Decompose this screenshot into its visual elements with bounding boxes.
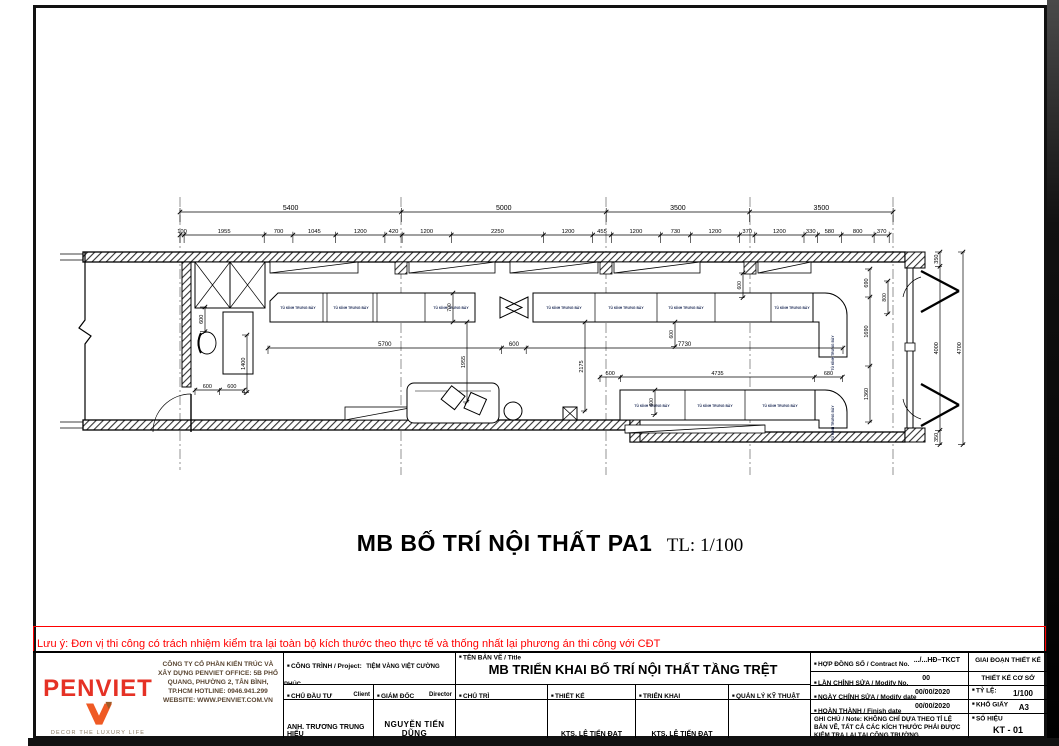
- dim-label: 1200: [629, 229, 642, 235]
- cabinet-label: TỦ KÍNH TRƯNG BÀY: [830, 335, 835, 371]
- modify-no-value: 00: [922, 675, 930, 682]
- dim-label: 4700: [957, 342, 963, 354]
- dim-label: 5000: [496, 205, 512, 212]
- page-edge-shadow-right: [1047, 0, 1059, 746]
- trienkhai-value: KTS. LÊ TIẾN ĐẠT: [636, 731, 728, 738]
- trienkhai-label: TRIỂN KHAI: [636, 692, 680, 700]
- drawing-sheet: TỦ KÍNH TRƯNG BÀY TỦ KÍNH TRƯNG BÀY TỦ K…: [0, 0, 1059, 746]
- dim-label: 690: [864, 278, 870, 287]
- dim-label: 7730: [678, 342, 692, 348]
- dim-label: 1200: [709, 229, 722, 235]
- finish-date-label: HOÀN THÀNH / Finish date: [811, 707, 901, 714]
- dim-label: 330: [806, 229, 816, 235]
- wall-break-line: [79, 252, 91, 420]
- stage-value: THIẾT KẾ CƠ SỞ: [969, 672, 1047, 682]
- client-value: ANH. TRƯƠNG TRUNG HIẾU: [287, 724, 373, 738]
- plan-title-text: MB BỐ TRÍ NỘI THẤT PA1: [357, 530, 653, 556]
- cabinet-label: TỦ KÍNH TRƯNG BÀY: [333, 305, 369, 310]
- sheet-no-cell: SỐ HIỆU KT - 01: [968, 714, 1047, 741]
- paper-label: KHỔ GIẤY: [969, 700, 1008, 709]
- cabinet-label: TỦ KÍNH TRƯNG BÀY: [774, 305, 810, 310]
- vestibule-wall: [182, 262, 191, 387]
- storefront-pier-bottom: [905, 428, 925, 442]
- logo-v-icon: [86, 701, 112, 727]
- wall-pier: [600, 262, 612, 274]
- company-info: CÔNG TY CỔ PHẦN KIẾN TRÚC VÀ XÂY DỰNG PE…: [155, 655, 283, 705]
- entrance-door-bottom: [903, 384, 959, 426]
- dim-label: 1200: [354, 229, 367, 235]
- director-sublabel: Director: [429, 692, 452, 698]
- thietke-label: THIẾT KẾ: [548, 692, 585, 700]
- wall-cabinets-top: [270, 262, 811, 273]
- cabinet-label: TỦ KÍNH TRƯNG BÀY: [830, 405, 835, 441]
- modify-date-label: NGÀY CHỈNH SỬA / Modify date: [811, 693, 917, 700]
- client-label: CHỦ ĐẦU TƯ: [284, 692, 332, 700]
- sofa: [407, 383, 522, 423]
- dim-label: 4735: [711, 371, 723, 377]
- logo-text: PENVIET: [43, 675, 153, 702]
- cabinet-label: TỦ KÍNH TRƯNG BÀY: [762, 403, 798, 408]
- cabinet-label: TỦ KÍNH TRƯNG BÀY: [608, 305, 644, 310]
- dim-label: 1200: [562, 229, 575, 235]
- drawing-title-cell: TÊN BẢN VẼ / Title MB TRIỂN KHAI BỐ TRÍ …: [455, 653, 810, 685]
- ghichu-label: GHI CHÚ / Note:: [814, 716, 862, 723]
- dim-label: 730: [671, 229, 681, 235]
- dim-label: 600: [227, 384, 236, 390]
- stage-label-cell: GIAI ĐOẠN THIẾT KẾ: [968, 653, 1047, 672]
- modify-date-row: NGÀY CHỈNH SỬA / Modify date 00/00/2020: [810, 686, 968, 700]
- finish-date-row: HOÀN THÀNH / Finish date 00/00/2020: [810, 700, 968, 714]
- dim-label: 5400: [283, 205, 299, 212]
- sheet-no-label: SỐ HIỆU: [969, 714, 1047, 723]
- plan-title-scale: TL: 1/100: [667, 535, 744, 556]
- chutri-header: CHỦ TRÌ: [455, 685, 547, 700]
- dim-label: 1955: [461, 356, 467, 368]
- dim-label: 350: [934, 433, 940, 442]
- dim-label: 600: [737, 281, 743, 290]
- trienkhai-header: TRIỂN KHAI: [635, 685, 728, 700]
- contract-value: .../...HĐ–TKCT: [914, 657, 960, 664]
- dim-label: 700: [274, 229, 284, 235]
- page-edge-shadow-bottom: [28, 738, 1059, 746]
- qlkt-cell: [728, 700, 810, 741]
- storefront-pier-top: [905, 252, 925, 268]
- cabinet-label: TỦ KÍNH TRƯNG BÀY: [546, 305, 582, 310]
- drawing-title-value: MB TRIỂN KHAI BỐ TRÍ NỘI THẤT TẦNG TRỆT: [456, 662, 810, 677]
- dim-label: 680: [824, 371, 833, 377]
- floor-plan-svg: TỦ KÍNH TRƯNG BÀY TỦ KÍNH TRƯNG BÀY TỦ K…: [55, 185, 1005, 485]
- dim-label: 3500: [670, 205, 686, 212]
- dim-label: 1200: [773, 229, 786, 235]
- modify-no-row: LẦN CHỈNH SỬA / Modify No. 00: [810, 672, 968, 686]
- dim-label: 455: [597, 229, 607, 235]
- paper-cell: KHỔ GIẤY A3: [968, 700, 1047, 714]
- dim-label: 100: [177, 229, 187, 235]
- storefront: [903, 268, 959, 428]
- warning-note-box: Lưu ý: Đơn vị thi công có trách nhiệm ki…: [33, 626, 1046, 653]
- qlkt-header: QUẢN LÝ KỸ THUẬT: [728, 685, 810, 700]
- dim-label: 3500: [814, 205, 830, 212]
- scale-cell: TỶ LỆ: 1/100: [968, 686, 1047, 700]
- ghichu-row: GHI CHÚ / Note: KHÔNG CHỈ DỰA THEO TỈ LỆ…: [810, 714, 968, 741]
- logo-tagline: DECOR THE LUXURY LIFE: [43, 730, 153, 736]
- cabinet-label: TỦ KÍNH TRƯNG BÀY: [697, 403, 733, 408]
- display-counter-top: [270, 293, 847, 357]
- title-block: PENVIET DECOR THE LUXURY LIFE CÔNG TY CỔ…: [33, 651, 1047, 739]
- dim-label: 600: [199, 315, 205, 324]
- qlkt-label: QUẢN LÝ KỸ THUẬT: [729, 692, 800, 700]
- dim-label: 2250: [491, 229, 504, 235]
- plan-title: MB BỐ TRÍ NỘI THẤT PA1 TL: 1/100: [200, 530, 900, 557]
- project-cell: CÔNG TRÌNH / Project: TIỆM VÀNG VIỆT CƯỜ…: [283, 653, 455, 685]
- top-wall: [83, 252, 905, 262]
- stage-value-cell: THIẾT KẾ CƠ SỞ: [968, 672, 1047, 686]
- chutri-cell: [455, 700, 547, 741]
- dim-label: 600: [203, 384, 212, 390]
- logo-cell: PENVIET DECOR THE LUXURY LIFE CÔNG TY CỔ…: [33, 653, 283, 741]
- dim-label: 800: [882, 293, 888, 302]
- dim-label: 5700: [378, 342, 392, 348]
- bottom-wall-right: [630, 432, 905, 442]
- contract-row: HỢP ĐỒNG SỐ / Contract No. .../...HĐ–TKC…: [810, 653, 968, 672]
- sheet-no-value: KT - 01: [969, 725, 1047, 735]
- dim-label: 800: [853, 229, 863, 235]
- paper-value: A3: [1019, 703, 1029, 712]
- bottom-wall-left: [83, 420, 630, 430]
- client-sublabel: Client: [353, 692, 370, 698]
- cabinet-label: TỦ KÍNH TRƯNG BÀY: [668, 305, 704, 310]
- warning-note-text: Lưu ý: Đơn vị thi công có trách nhiệm ki…: [37, 638, 660, 650]
- scale-label: TỶ LỆ:: [969, 686, 997, 695]
- storage-boxes: [195, 262, 265, 308]
- dim-label: 600: [669, 330, 675, 339]
- side-table: [504, 402, 522, 420]
- dim-label: 2175: [579, 360, 585, 372]
- dim-label: 370: [742, 229, 752, 235]
- wall-pier: [744, 262, 756, 274]
- director-cell: NGUYỄN TIẾN DŨNG: [373, 700, 455, 741]
- dim-label: 370: [877, 229, 887, 235]
- floor-plan: TỦ KÍNH TRƯNG BÀY TỦ KÍNH TRƯNG BÀY TỦ K…: [55, 185, 1005, 485]
- project-label: CÔNG TRÌNH / Project:: [284, 663, 362, 670]
- dim-label: 600: [649, 398, 655, 407]
- client-header: CHỦ ĐẦU TƯ Client: [283, 685, 373, 700]
- dim-label: 1360: [864, 388, 870, 400]
- dim-label: 1690: [864, 325, 870, 337]
- director-value: NGUYỄN TIẾN DŨNG: [374, 720, 455, 738]
- thietke-value: KTS. LÊ TIẾN ĐẠT: [548, 731, 635, 738]
- dim-label: 1955: [218, 229, 231, 235]
- stage-label: GIAI ĐOẠN THIẾT KẾ: [969, 653, 1047, 664]
- dim-label: 350: [934, 255, 940, 264]
- dim-label: 1200: [420, 229, 433, 235]
- thietke-cell: KTS. LÊ TIẾN ĐẠT: [547, 700, 635, 741]
- dim-label: 500: [606, 371, 615, 377]
- chutri-label: CHỦ TRÌ: [456, 692, 489, 700]
- director-header: GIÁM ĐỐC Director: [373, 685, 455, 700]
- dim-label: 420: [389, 229, 399, 235]
- dim-label: 700: [447, 303, 453, 312]
- contract-label: HỢP ĐỒNG SỐ / Contract No.: [811, 660, 909, 668]
- column: [563, 407, 577, 420]
- corner-counter: [813, 293, 847, 357]
- dim-label: 1045: [308, 229, 321, 235]
- drawing-title-label: TÊN BẢN VẼ / Title: [456, 653, 810, 662]
- chair: [198, 332, 216, 354]
- dim-label: 600: [509, 342, 520, 348]
- director-label: GIÁM ĐỐC: [374, 692, 414, 700]
- dim-label: 580: [825, 229, 835, 235]
- cabinet-label: TỦ KÍNH TRƯNG BÀY: [280, 305, 316, 310]
- dim-label: 4000: [934, 342, 940, 354]
- finish-date-value: 00/00/2020: [915, 703, 950, 710]
- scale-value: 1/100: [1013, 689, 1033, 698]
- direction-marker: [500, 297, 528, 318]
- display-counter-bottom: [620, 390, 847, 428]
- entrance-door-top: [903, 271, 959, 312]
- modify-no-label: LẦN CHỈNH SỬA / Modify No.: [811, 679, 908, 686]
- wall-pier: [395, 262, 407, 274]
- thietke-header: THIẾT KẾ: [547, 685, 635, 700]
- trienkhai-cell: KTS. LÊ TIẾN ĐẠT: [635, 700, 728, 741]
- modify-date-value: 00/00/2020: [915, 689, 950, 696]
- company-logo: PENVIET DECOR THE LUXURY LIFE: [43, 677, 153, 736]
- client-cell: ANH. TRƯƠNG TRUNG HIẾU: [283, 700, 373, 741]
- dim-label: 1400: [241, 358, 247, 370]
